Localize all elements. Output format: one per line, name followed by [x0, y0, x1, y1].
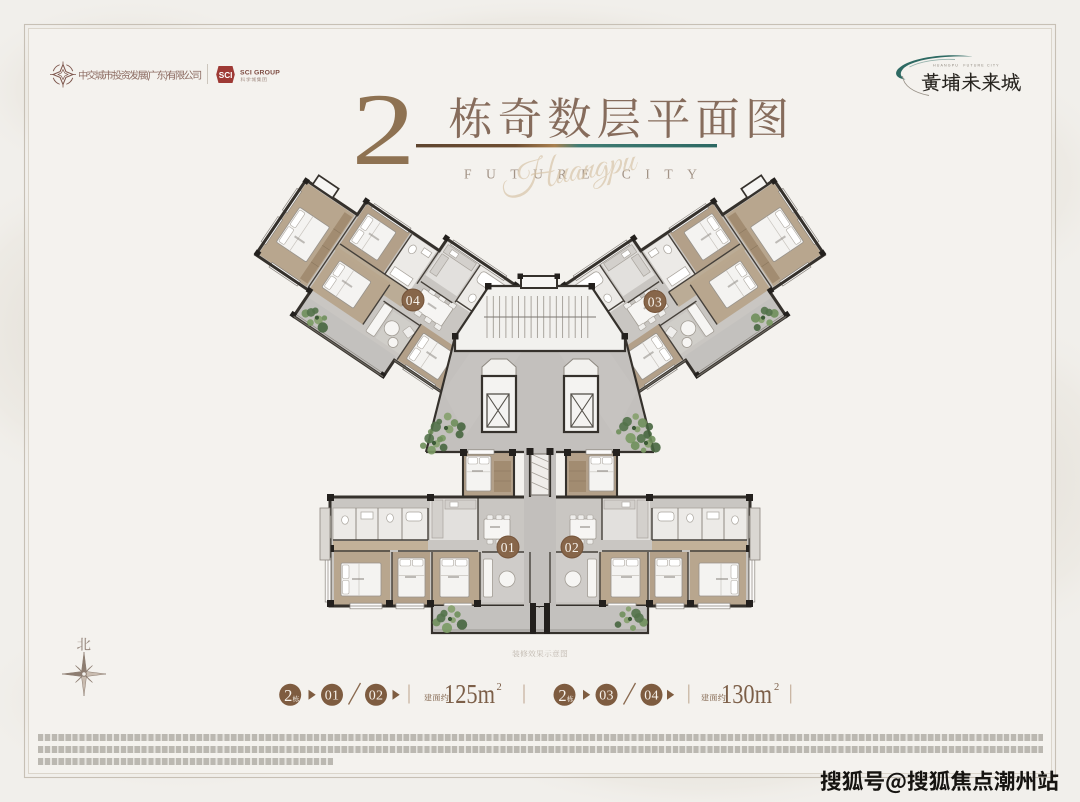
svg-text:2: 2 [352, 73, 416, 187]
svg-text:FUTURE CITY: FUTURE CITY [464, 167, 711, 182]
svg-text:130m: 130m [721, 679, 772, 709]
svg-text:125m: 125m [444, 679, 495, 709]
svg-text:2: 2 [558, 686, 566, 705]
svg-text:03: 03 [599, 689, 614, 704]
svg-text:SCI: SCI [219, 71, 233, 80]
svg-text:02: 02 [565, 540, 580, 555]
svg-text:02: 02 [369, 689, 384, 704]
svg-text:2: 2 [497, 682, 502, 693]
svg-text:HUANGPU FUTURE CITY: HUANGPU FUTURE CITY [933, 64, 1000, 68]
svg-text:01: 01 [325, 689, 340, 704]
svg-text:01: 01 [501, 540, 516, 555]
svg-text:03: 03 [648, 294, 663, 309]
svg-text:2: 2 [284, 686, 292, 705]
svg-text:04: 04 [644, 689, 659, 704]
svg-text:SCI GROUP: SCI GROUP [240, 70, 280, 77]
svg-text:2: 2 [774, 682, 779, 693]
svg-text:04: 04 [406, 293, 421, 308]
